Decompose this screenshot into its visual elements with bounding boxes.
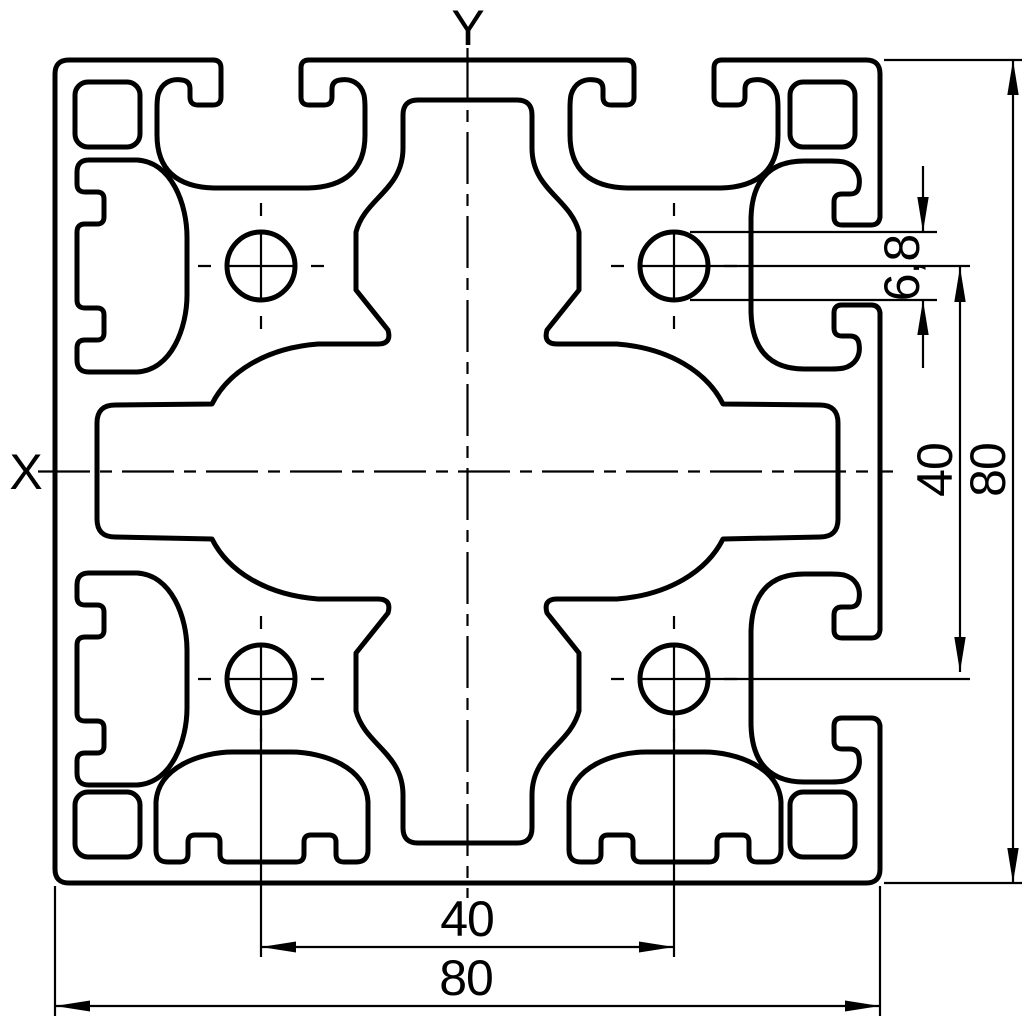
arrow-hole-diameter-bottom xyxy=(917,300,928,335)
dim-text-hole-diameter: 6,8 xyxy=(874,235,930,302)
corner-cavity-top-left xyxy=(75,82,140,147)
dim-text-bottom-80: 80 xyxy=(439,950,493,1006)
t-slot-top-right xyxy=(570,60,778,188)
axis-label-x: X xyxy=(9,444,42,500)
arrow-right-80-bottom xyxy=(1007,848,1018,883)
arrow-bottom-80-left xyxy=(55,1001,90,1012)
dim-text-right-80: 80 xyxy=(960,443,1016,497)
drawing-canvas: X Y 40 80 40 80 6,8 xyxy=(0,0,1024,1024)
closed-slot-left-lower xyxy=(77,573,187,785)
arrow-right-40-top xyxy=(954,267,965,302)
arrow-bottom-80-right xyxy=(845,1001,880,1012)
arrow-bottom-40-left xyxy=(261,942,296,953)
arrow-right-40-bottom xyxy=(954,637,965,672)
dim-text-bottom-40: 40 xyxy=(440,891,494,947)
arrow-right-80-top xyxy=(1007,60,1018,95)
corner-cavity-bottom-right xyxy=(790,792,855,857)
arrow-bottom-40-right xyxy=(639,942,674,953)
axis-label-y: Y xyxy=(451,0,484,56)
arrow-hole-diameter-top xyxy=(917,197,928,232)
closed-slot-left-upper xyxy=(77,160,187,372)
corner-cavity-bottom-left xyxy=(75,792,140,857)
profile-drawing: X Y 40 80 40 80 6,8 xyxy=(0,0,1024,1024)
t-slot-top-left xyxy=(157,60,365,188)
hole-crosshair-top-left xyxy=(198,203,324,329)
dim-text-right-40: 40 xyxy=(907,443,963,497)
corner-cavity-top-right xyxy=(790,82,855,147)
